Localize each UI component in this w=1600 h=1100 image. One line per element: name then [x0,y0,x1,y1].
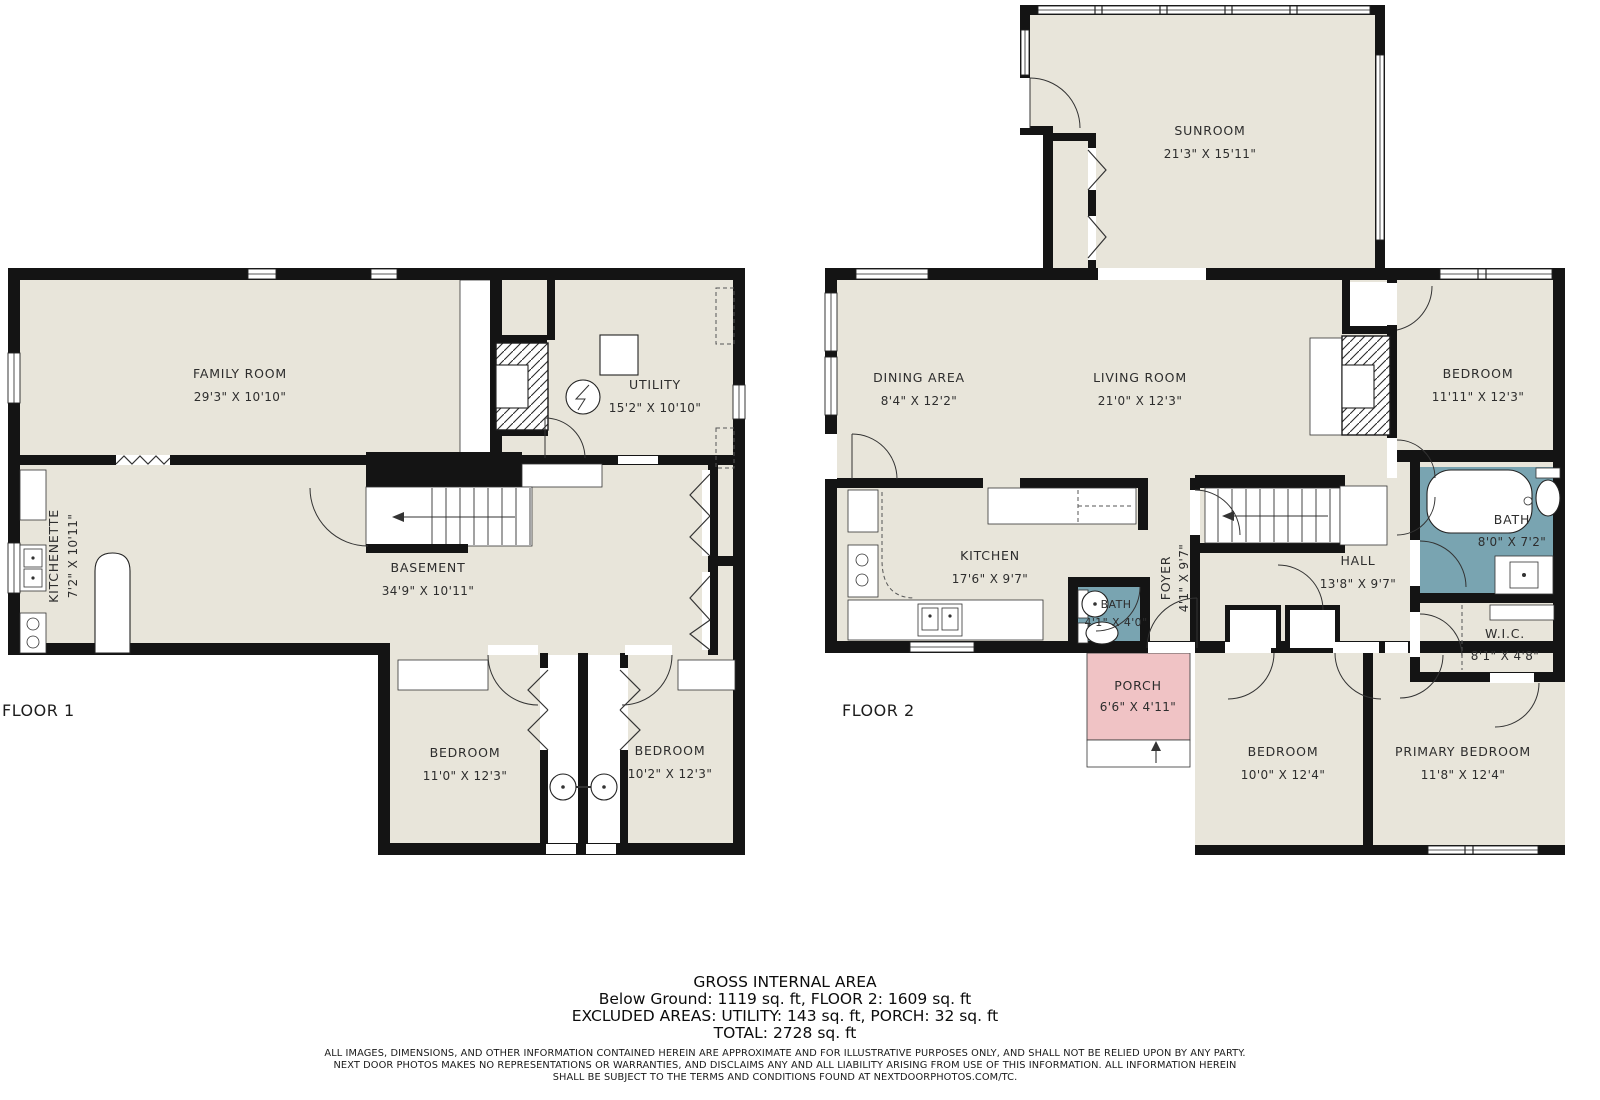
peninsula-counter-icon [988,488,1136,524]
sink-icon [20,545,46,591]
disclaimer-line1: ALL IMAGES, DIMENSIONS, AND OTHER INFORM… [324,1048,1245,1059]
vanity-sink-icon [1495,556,1553,594]
room-label: UTILITY [629,377,681,392]
room-dims: 7'2" X 10'11" [66,514,80,599]
fireplace-chimney-icon [1310,336,1390,435]
disclaimer-line3: SHALL BE SUBJECT TO THE TERMS AND CONDIT… [553,1072,1018,1083]
room-dims: 10'0" X 12'4" [1241,768,1326,782]
room-dims: 11'11" X 12'3" [1432,390,1525,404]
room-dims: 6'6" X 4'11" [1100,700,1176,714]
cabinet-icon [848,490,878,532]
room-label: W.I.C. [1485,626,1525,641]
room-dims: 4'1" X 4'0" [1084,616,1147,629]
room-label: LIVING ROOM [1093,370,1187,385]
floor2-title: FLOOR 2 [842,701,915,720]
appliance-icon [600,335,638,375]
room-dims: 13'8" X 9'7" [1320,577,1396,591]
summary-line1: Below Ground: 1119 sq. ft, FLOOR 2: 1609… [599,990,972,1008]
room-label: BATH [1494,512,1530,527]
room-label: PRIMARY BEDROOM [1395,744,1531,759]
room-label: DINING AREA [873,370,965,385]
room-dims: 11'0" X 12'3" [423,769,508,783]
room-dims: 21'0" X 12'3" [1098,394,1183,408]
room-dims: 10'2" X 12'3" [628,767,713,781]
room-dims: 4'1" X 9'7" [1177,544,1191,612]
room-label: BEDROOM [430,745,501,760]
floor-plan-drawing: FAMILY ROOM 29'3" X 10'10" UTILITY 15'2"… [0,0,1600,1100]
disclaimer: ALL IMAGES, DIMENSIONS, AND OTHER INFORM… [324,1048,1245,1083]
room-label: KITCHENETTE [46,509,61,603]
floor1-upper-stair-strip [460,280,491,455]
stove-icon [20,613,46,653]
room-dims: 34'9" X 10'11" [382,584,475,598]
room-dims: 8'4" X 12'2" [881,394,957,408]
floor1-title: FLOOR 1 [2,701,75,720]
room-dims: 15'2" X 10'10" [609,401,702,415]
room-label: BEDROOM [635,743,706,758]
room-dims: 8'0" X 7'2" [1478,535,1546,549]
room-label: BATH [1101,598,1132,611]
room-label: SUNROOM [1174,123,1245,138]
floor2-plan: SUNROOM 21'3" X 15'11" DINING AREA 8'4" … [825,5,1565,855]
room-label: PORCH [1114,678,1162,693]
door-leaf-icon [95,553,130,653]
porch-steps [1087,740,1190,767]
built-in-icon [398,660,488,690]
fixture-circle-icon [550,774,576,800]
floor1-stairs [366,487,532,553]
room-label: BEDROOM [1248,744,1319,759]
counter-icon [20,470,46,520]
toilet-icon [1536,468,1560,516]
room-label: FOYER [1158,556,1173,601]
room-label: HALL [1340,553,1375,568]
zigzag-opening-icon [116,455,170,465]
stove-icon [848,545,878,597]
area-summary: GROSS INTERNAL AREA Below Ground: 1119 s… [572,973,999,1042]
fixture-circle-icon [591,774,617,800]
room-label: BASEMENT [390,560,465,575]
floor1-plan: FAMILY ROOM 29'3" X 10'10" UTILITY 15'2"… [2,268,745,855]
summary-line3: TOTAL: 2728 sq. ft [713,1024,857,1042]
floor2-stairs [1205,486,1387,545]
room-label: KITCHEN [960,548,1020,563]
floor-plan-page: FAMILY ROOM 29'3" X 10'10" UTILITY 15'2"… [0,0,1600,1100]
disclaimer-line2: NEXT DOOR PHOTOS MAKES NO REPRESENTATION… [334,1060,1237,1071]
sink-icon [918,604,962,636]
room-dims: 11'8" X 12'4" [1421,768,1506,782]
fireplace-chimney-icon [496,343,548,430]
summary-title: GROSS INTERNAL AREA [693,973,877,991]
room-dims: 17'6" X 9'7" [952,572,1028,586]
water-heater-icon [566,380,600,414]
room-label: BEDROOM [1443,366,1514,381]
summary-line2: EXCLUDED AREAS: UTILITY: 143 sq. ft, POR… [572,1007,999,1025]
room-dims: 8'1" X 4'8" [1471,649,1539,663]
room-dims: 29'3" X 10'10" [194,390,287,404]
room-dims: 21'3" X 15'11" [1164,147,1257,161]
built-in-icon [678,660,735,690]
shelf-icon [1490,605,1554,620]
faucet-icon [1524,497,1532,505]
room-label: FAMILY ROOM [193,366,287,381]
